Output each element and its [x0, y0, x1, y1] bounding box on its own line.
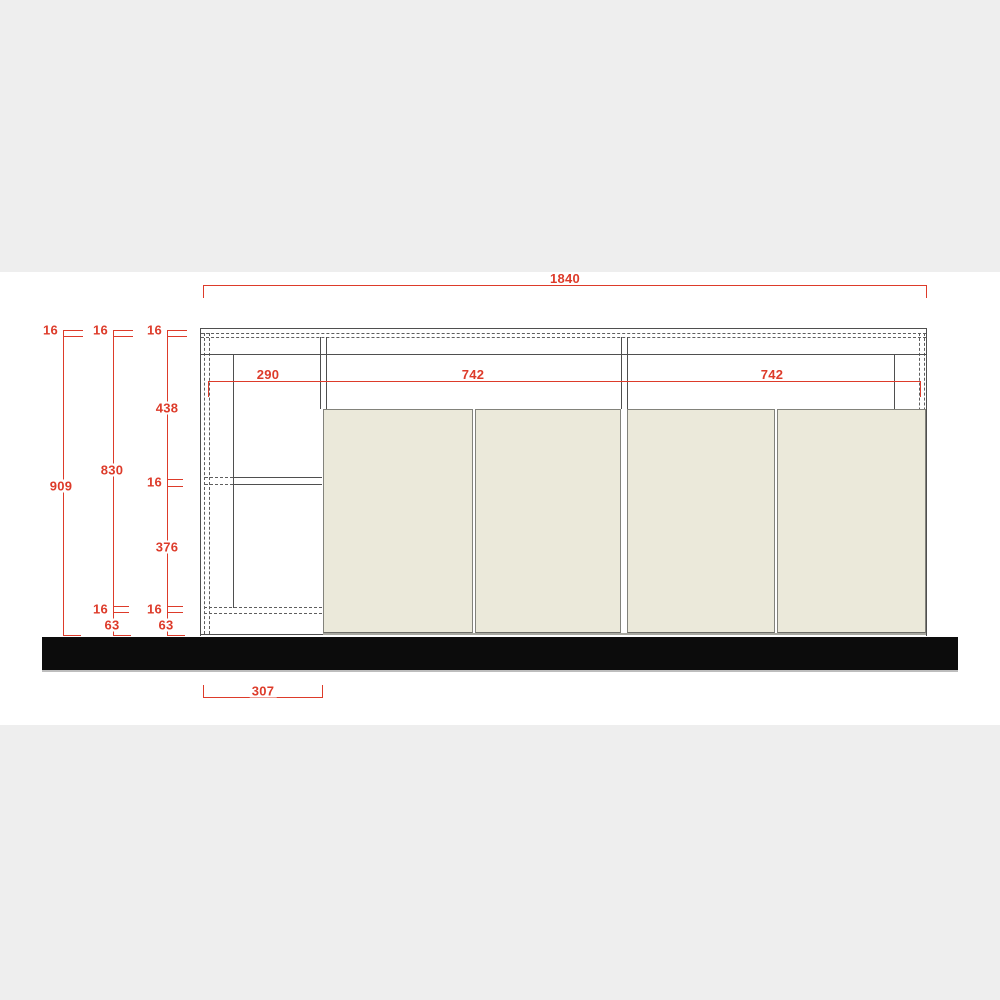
- floor-bar: [42, 637, 958, 670]
- top-rail-underside-line: [200, 354, 927, 355]
- dim-tick-total-width-left: [203, 285, 204, 298]
- dim-label-doors-left-pair: 742: [462, 368, 485, 381]
- dim-tick-interior-right: [920, 381, 921, 397]
- shelf-bottom-line: [233, 484, 322, 485]
- dim-chain-a-tick-bottom: [63, 635, 81, 636]
- background-band-top: [0, 0, 1000, 272]
- dim-label-shelf-panel: 16: [147, 476, 165, 489]
- dim-label-panel-bottom-b: 16: [93, 603, 111, 616]
- dim-label-plinth-b: 63: [102, 619, 121, 632]
- dim-chain-b-tick-mid-2: [113, 612, 129, 613]
- dim-chain-c-tick-mid-1: [167, 606, 183, 607]
- shelf-top-line: [233, 477, 322, 478]
- background-band-bottom: [0, 725, 1000, 1000]
- dim-tick-plinth-side-right: [322, 685, 323, 697]
- dim-label-panel-bottom-c: 16: [147, 603, 165, 616]
- door-panel-3: [627, 409, 775, 633]
- dim-label-height-overall: 909: [48, 480, 75, 493]
- dim-label-upper-compartment: 438: [154, 402, 181, 415]
- shelf-hidden-line-2: [205, 484, 233, 485]
- door-panel-1: [323, 409, 473, 633]
- dim-label-panel-top-b: 16: [93, 324, 111, 337]
- dim-chain-c-tick-top-1: [167, 330, 187, 331]
- dim-label-plinth-c: 63: [156, 619, 175, 632]
- dim-tick-interior-left: [208, 381, 209, 397]
- door-panel-2: [475, 409, 621, 633]
- dim-line-interior-widths: [208, 381, 921, 382]
- niche-inner-left-line: [233, 354, 234, 608]
- dim-chain-b-tick-top-1: [113, 330, 133, 331]
- shelf-hidden-line-1: [205, 477, 233, 478]
- floor-bar-shadow: [42, 670, 958, 672]
- dim-chain-c-tick-top-2: [167, 336, 187, 337]
- dim-chain-b-tick-bottom: [113, 635, 131, 636]
- dim-label-lower-compartment: 376: [154, 541, 181, 554]
- partition-left-line-2: [326, 337, 327, 409]
- dim-chain-c-tick-shelf-2: [167, 486, 183, 487]
- dim-tick-plinth-side-left: [203, 685, 204, 697]
- dim-label-doors-right-pair: 742: [761, 368, 784, 381]
- technical-drawing: 1840 290 742 742 16 909 16 830 16 63 16 …: [0, 0, 1000, 1000]
- door-bottom-shadow: [323, 633, 926, 635]
- dim-label-panel-top-a: 16: [43, 324, 61, 337]
- dim-label-niche-width: 290: [257, 368, 280, 381]
- partition-left-line-1: [320, 337, 321, 409]
- dim-label-height-body: 830: [99, 464, 126, 477]
- dim-chain-a-tick-top-1: [63, 330, 83, 331]
- dim-label-total-width: 1840: [550, 272, 580, 285]
- dim-chain-c-tick-shelf-1: [167, 479, 183, 480]
- bottom-panel-hidden-line-1: [204, 607, 322, 608]
- dim-chain-b-tick-mid-1: [113, 606, 129, 607]
- dim-label-plinth-side-depth: 307: [250, 685, 277, 698]
- top-panel-hidden-line-2: [201, 337, 926, 338]
- dim-tick-total-width-right: [926, 285, 927, 298]
- dim-chain-c-tick-mid-2: [167, 612, 183, 613]
- bottom-panel-hidden-line-2: [204, 613, 322, 614]
- dim-chain-c-line: [167, 330, 168, 635]
- dim-chain-b-line: [113, 330, 114, 635]
- dim-label-panel-top-c: 16: [147, 324, 165, 337]
- partition-middle-line-1: [621, 337, 622, 409]
- door-panel-4: [777, 409, 926, 633]
- dim-chain-c-tick-bottom: [167, 635, 185, 636]
- partition-middle-line-2: [627, 337, 628, 409]
- dim-chain-a-tick-top-2: [63, 336, 83, 337]
- dim-chain-b-tick-top-2: [113, 336, 133, 337]
- top-panel-hidden-line-1: [201, 333, 926, 334]
